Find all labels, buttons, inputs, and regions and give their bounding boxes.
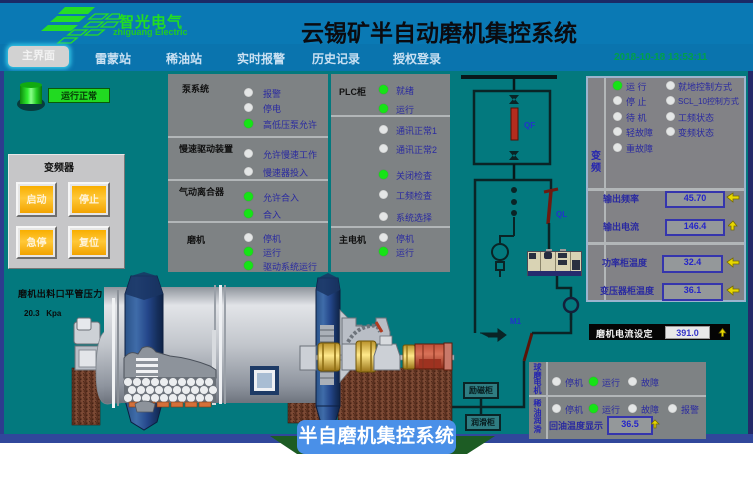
svg-text:QL: QL xyxy=(556,210,567,219)
svg-text:QF: QF xyxy=(524,121,535,130)
svg-text:M1: M1 xyxy=(510,317,522,326)
